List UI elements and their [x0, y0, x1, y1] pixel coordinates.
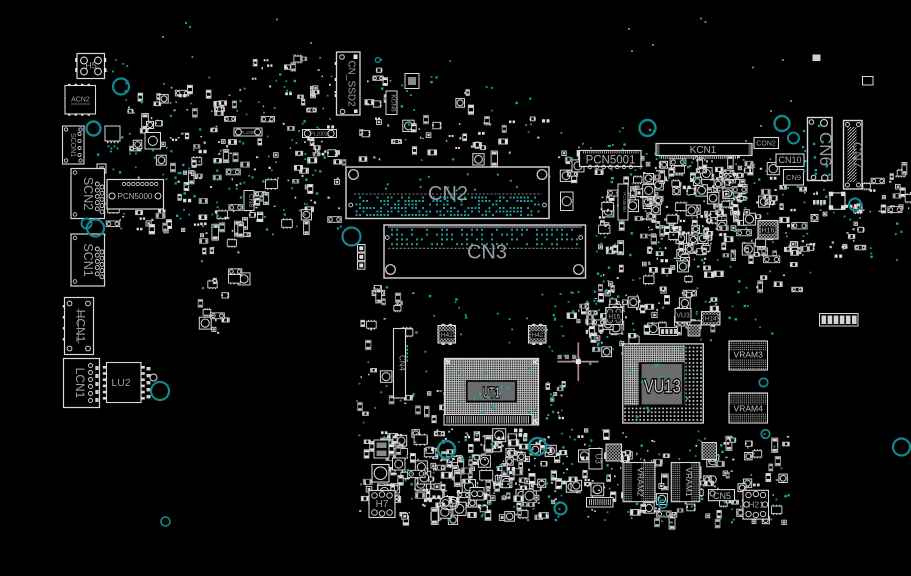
svg-text:SCN1: SCN1: [81, 243, 95, 276]
svg-text:H5: H5: [85, 61, 97, 71]
svg-text:H14: H14: [705, 316, 717, 323]
svg-text:LU2: LU2: [111, 377, 130, 389]
svg-text:SCON1: SCON1: [69, 133, 76, 157]
svg-text:CON2: CON2: [756, 141, 776, 148]
svg-text:H7: H7: [376, 499, 389, 510]
svg-text:KCN8: KCN8: [390, 94, 397, 112]
svg-text:CN8: CN8: [247, 194, 254, 207]
svg-text:CN6: CN6: [816, 132, 835, 166]
svg-text:VU13: VU13: [644, 376, 681, 396]
svg-text:VRAM1: VRAM1: [684, 467, 694, 497]
svg-text:PCN5000: PCN5000: [118, 192, 153, 201]
svg-text:PL1000: PL1000: [240, 130, 256, 135]
svg-text:KCN1: KCN1: [690, 145, 717, 156]
svg-text:CN4: CN4: [398, 355, 407, 372]
svg-text:VRAM2: VRAM2: [635, 467, 645, 497]
svg-text:H42: H42: [531, 332, 543, 339]
svg-text:ACN2: ACN2: [71, 97, 90, 104]
svg-text:LCN1: LCN1: [73, 368, 87, 399]
svg-text:H42: H42: [441, 332, 453, 339]
svg-text:SCN2: SCN2: [81, 177, 95, 210]
svg-text:U3: U3: [594, 454, 603, 465]
svg-text:CN5: CN5: [713, 491, 731, 501]
svg-text:VRAM3: VRAM3: [734, 350, 764, 360]
svg-text:H15: H15: [608, 313, 620, 320]
svg-text:CN9: CN9: [786, 173, 801, 182]
svg-text:H21: H21: [748, 500, 764, 510]
svg-text:PCN5000: PCN5000: [622, 192, 627, 212]
svg-text:HCN1: HCN1: [74, 310, 88, 343]
svg-text:PL1001: PL1001: [310, 132, 327, 138]
svg-text:VRAM4: VRAM4: [734, 404, 764, 414]
svg-text:VU3: VU3: [676, 313, 690, 320]
svg-text:PCN5001: PCN5001: [586, 155, 636, 167]
svg-text:UT1: UT1: [483, 384, 500, 401]
svg-text:CN_SSD2: CN_SSD2: [346, 60, 357, 107]
svg-text:H16: H16: [762, 228, 775, 235]
svg-text:CN10: CN10: [778, 155, 801, 165]
svg-text:CN7: CN7: [850, 142, 865, 168]
